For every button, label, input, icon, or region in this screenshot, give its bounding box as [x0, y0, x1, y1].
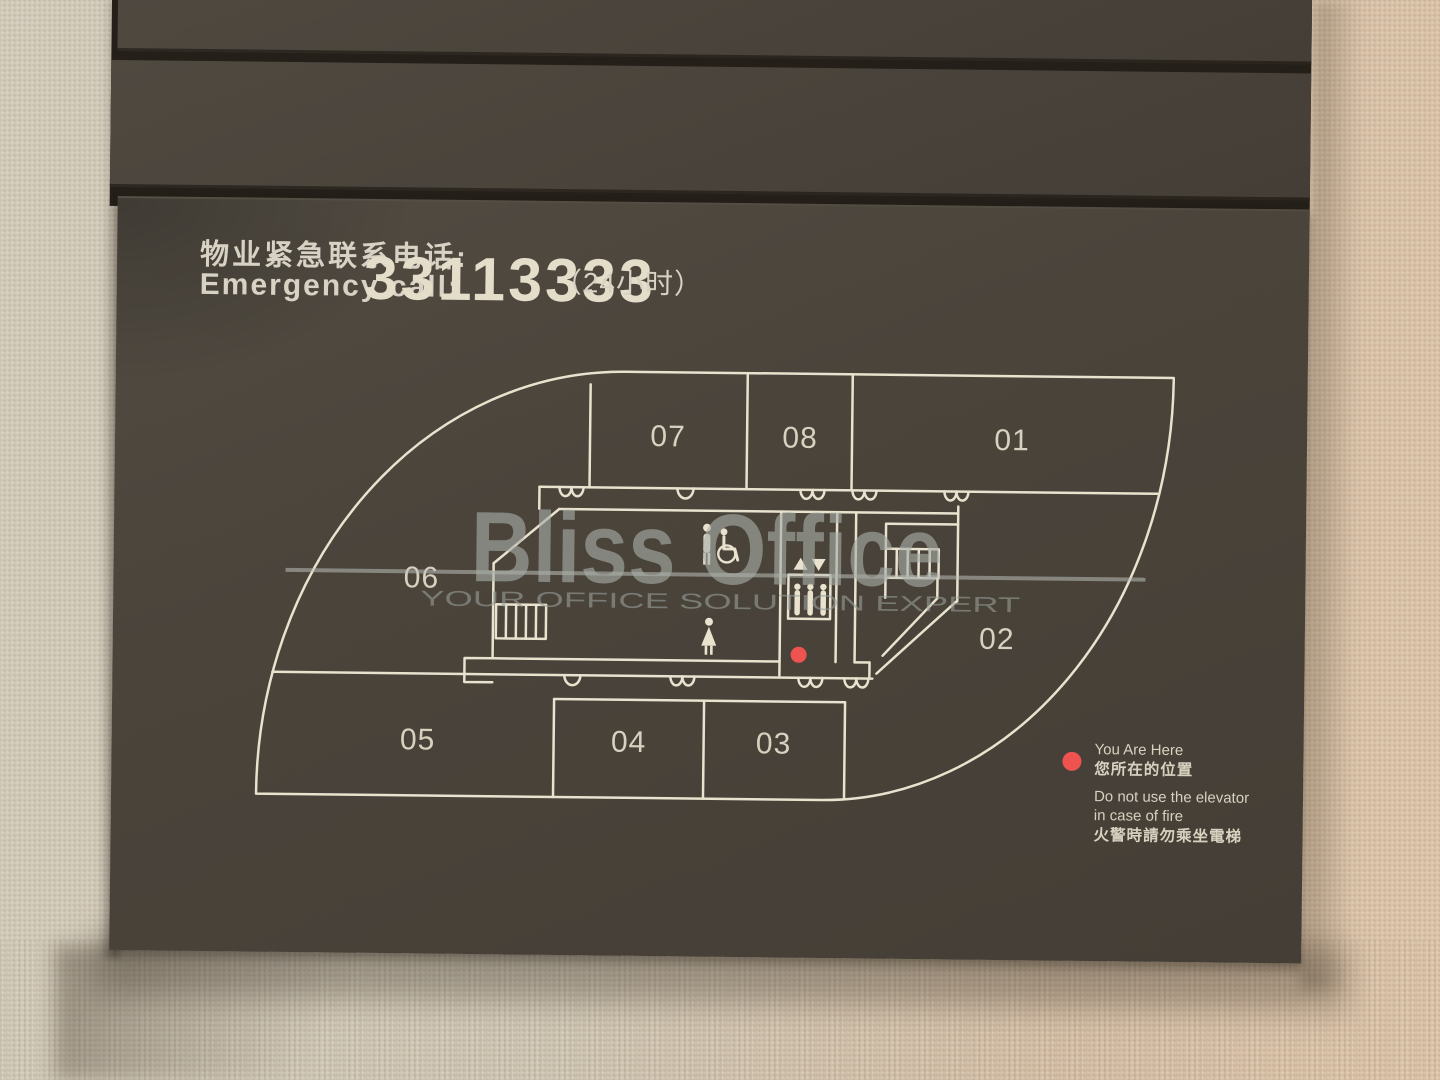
room-label: 04 [611, 726, 647, 759]
watermark: Bliss Office YOUR OFFICE SOLUTION EXPERT [285, 489, 1146, 619]
legend-you-are-here-en: You Are Here [1094, 741, 1249, 762]
upper-sign-plate-2 [110, 60, 1311, 201]
room-label: 01 [994, 424, 1030, 457]
legend-you-are-here-zh: 您所在的位置 [1094, 760, 1249, 781]
room-label: 03 [756, 727, 792, 760]
plan-legend: You Are Here 您所在的位置 Do not use the eleva… [1055, 741, 1249, 847]
room-label: 02 [979, 623, 1015, 656]
photo-of-floor-directory-sign: { "emergency_header": { "label_zh": "物业紧… [0, 0, 1440, 1080]
room-label: 05 [400, 723, 436, 756]
female-figure-icon [701, 618, 716, 655]
legend-fire-warning-line1: Do not use the elevator [1094, 788, 1249, 809]
you-are-here-dot [791, 647, 807, 663]
floor-directory-plate: 物业紧急联系电话: Emergency call: 33113333 （24小时… [109, 196, 1309, 963]
floor-plan-svg: 07 08 01 06 02 05 04 03 Bliss Office YOU… [253, 362, 1178, 818]
emergency-hours: （24小时） [554, 261, 704, 303]
diagonal-shadow [55, 945, 485, 1080]
legend-fire-warning-line2: in case of fire [1094, 807, 1249, 828]
legend-fire-warning-zh: 火警時請勿乘坐電梯 [1093, 826, 1248, 847]
legend-you-are-here-dot [1062, 752, 1081, 771]
room-label: 08 [782, 422, 818, 455]
room-label: 07 [650, 420, 686, 453]
